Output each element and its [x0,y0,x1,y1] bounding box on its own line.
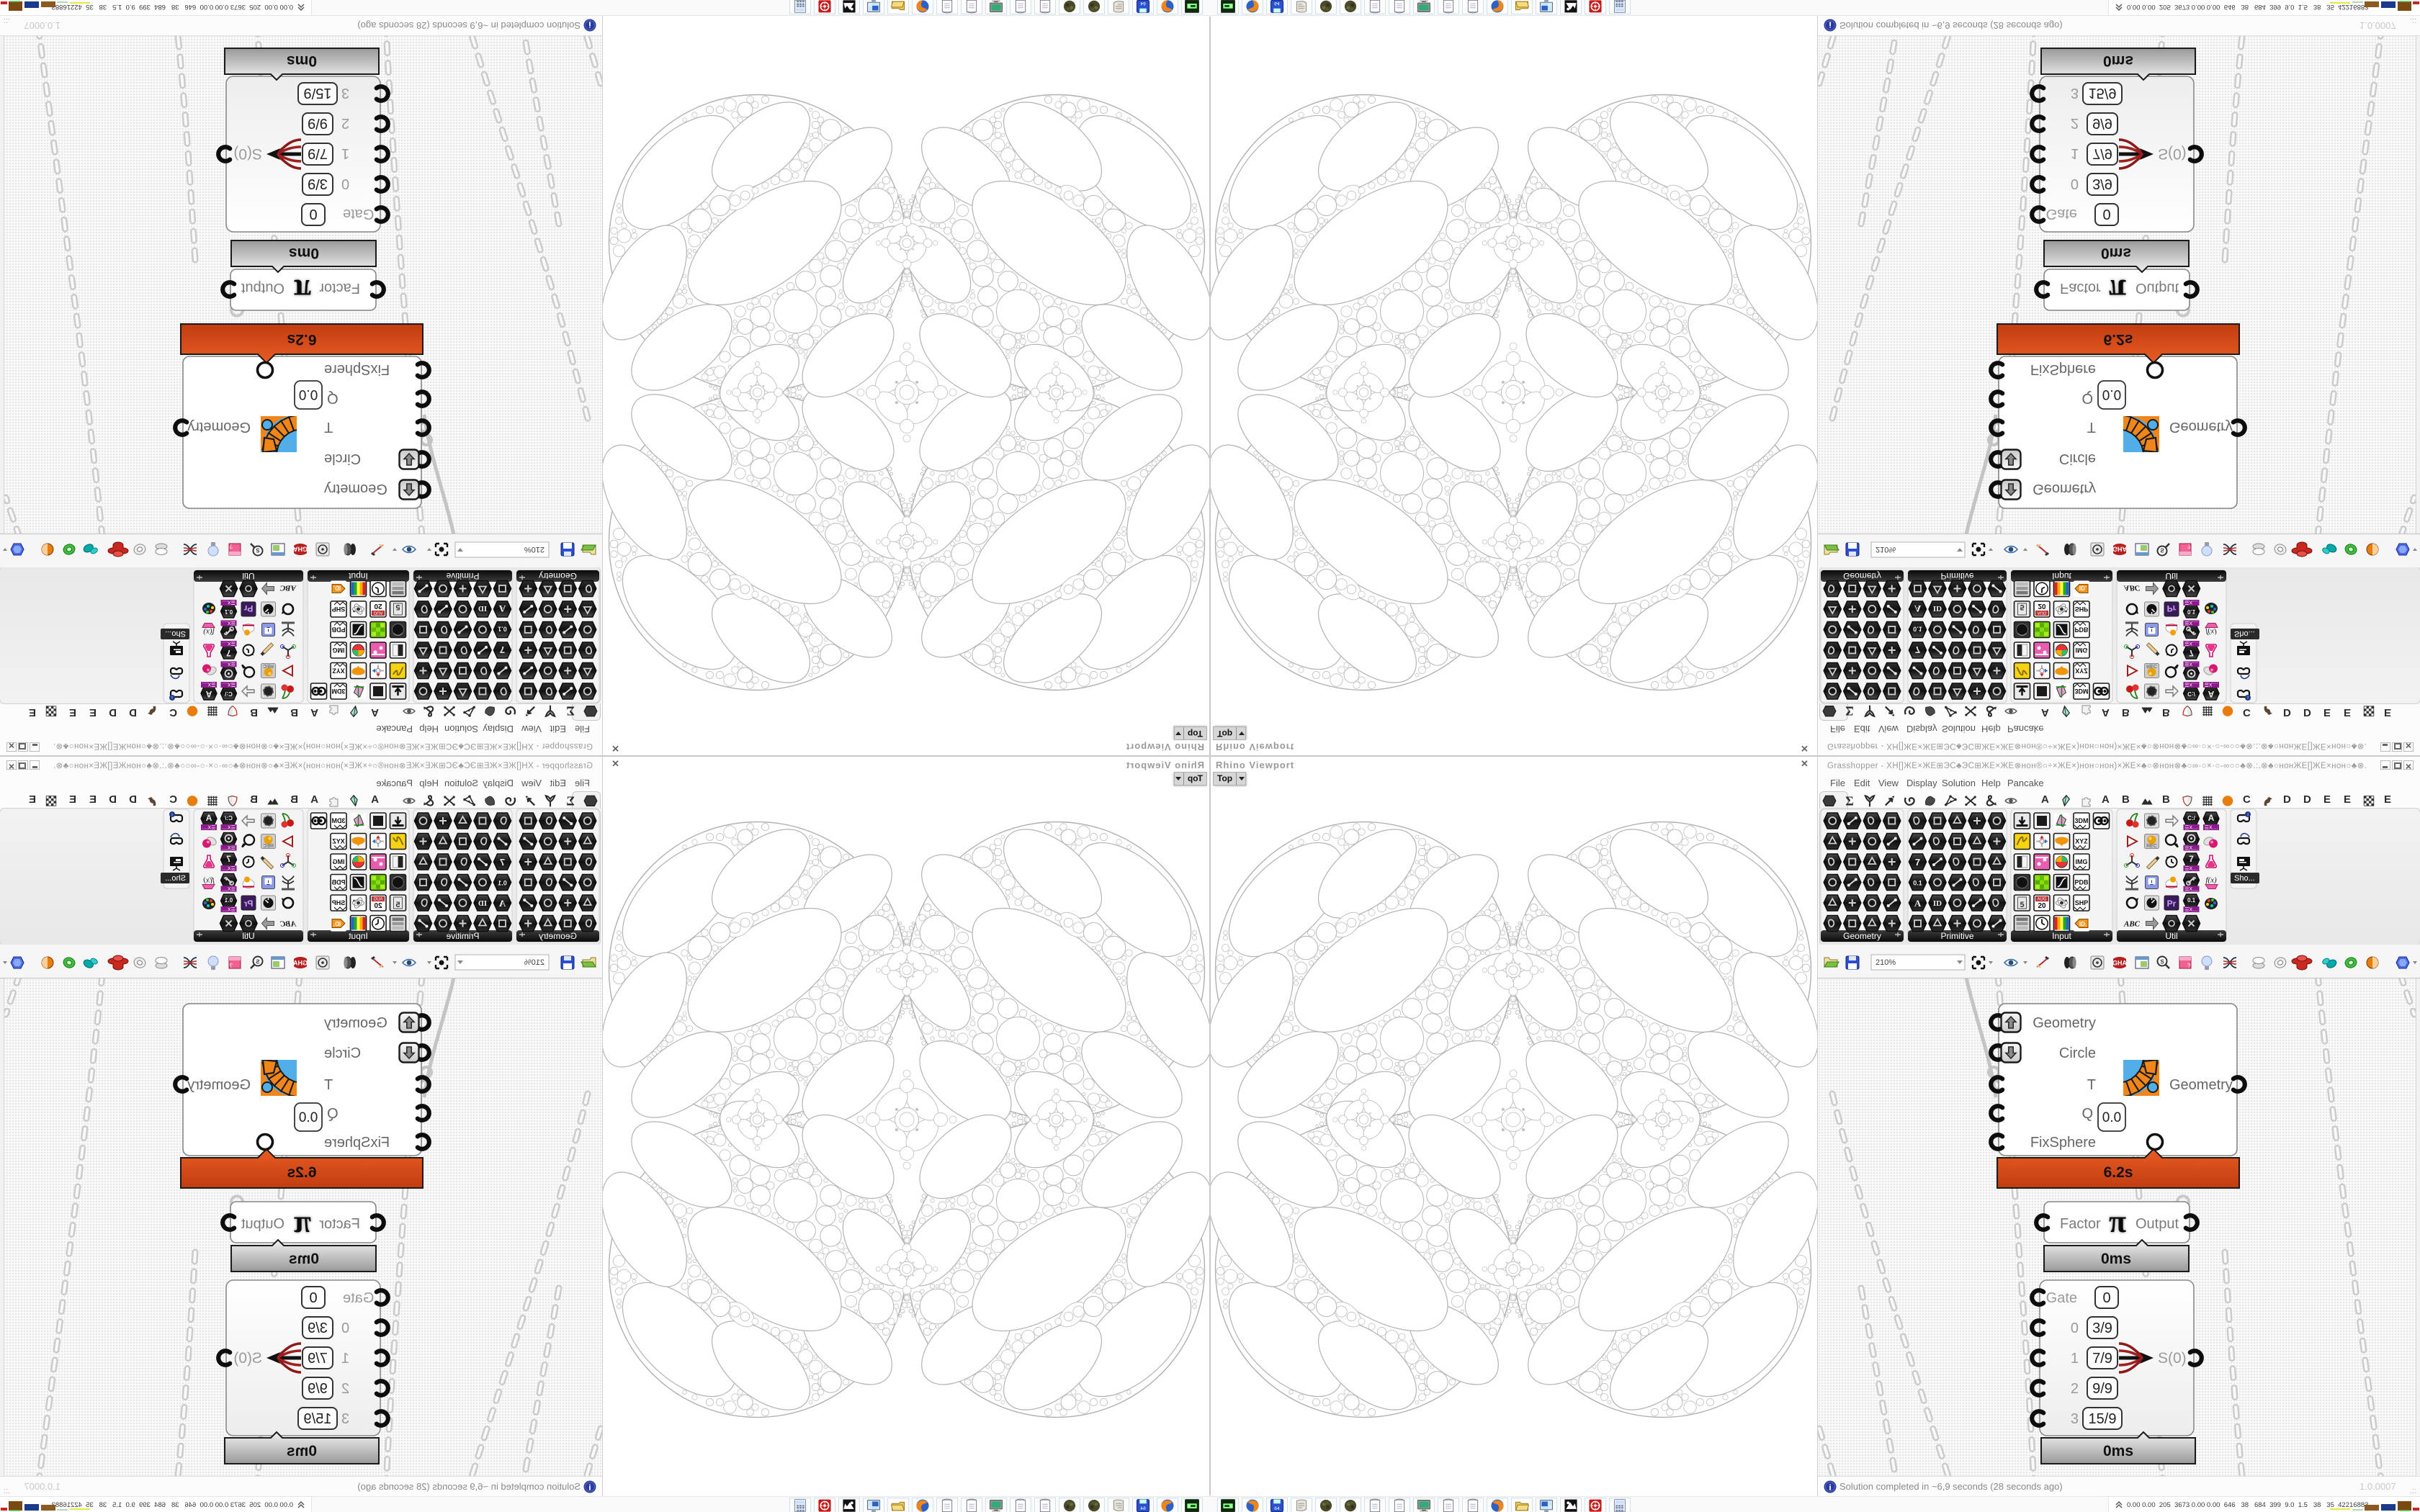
svg-text:A: A [205,813,212,823]
svg-text:C:/: C:/ [2187,815,2195,822]
svg-text:7: 7 [226,854,231,864]
svg-text:?: ? [2187,543,2191,549]
svg-text:AUG: AUG [373,611,382,615]
svg-text:Output: Output [2136,1216,2179,1232]
svg-text:Gate: Gate [343,1290,374,1306]
svg-text:☰X....: ☰X.... [222,620,236,625]
svg-text:FixSphere: FixSphere [324,1135,390,1151]
svg-text:7/9: 7/9 [2092,145,2112,161]
svg-text:π: π [294,273,311,308]
svg-text:Σ: Σ [566,704,575,718]
svg-text:0ms: 0ms [2101,245,2131,261]
svg-text:Q: Q [327,390,339,406]
svg-text:3DM: 3DM [331,688,345,695]
svg-text:Gate: Gate [2046,1290,2077,1306]
svg-text:Σ: Σ [1845,704,1854,718]
svg-text:Gate: Gate [2046,206,2077,222]
svg-text:Geometry: Geometry [539,931,577,941]
svg-text:Geometry: Geometry [324,1015,387,1031]
svg-text:S(0): S(0) [2158,1350,2187,1367]
svg-text:☰X....: ☰X.... [2205,826,2218,831]
svg-text:0.1: 0.1 [224,897,233,904]
svg-text:0.1: 0.1 [1913,626,1922,633]
svg-text:0.1: 0.1 [1913,880,1922,887]
svg-text:S(0): S(0) [233,145,262,162]
svg-text:☰X....: ☰X.... [222,826,236,831]
svg-text:Circle: Circle [324,451,361,467]
svg-text:Factor: Factor [319,280,360,296]
svg-text:A: A [498,603,506,614]
svg-text:XYZ: XYZ [332,838,345,845]
svg-text:Primitive: Primitive [446,931,479,941]
svg-text:S: S [256,959,260,966]
svg-text:SHP: SHP [2075,899,2089,906]
svg-text:T: T [324,1077,333,1093]
svg-text:C:/: C:/ [224,815,232,822]
svg-text:AUG: AUG [2037,898,2046,902]
svg-text:ID.: ID. [2079,921,2087,927]
svg-text:9/9: 9/9 [2092,115,2112,131]
svg-text:Pr: Pr [2167,899,2177,909]
svg-text:0.1: 0.1 [498,626,507,633]
svg-text:0ms: 0ms [2103,1443,2133,1459]
svg-text:3: 3 [2071,1411,2079,1427]
svg-text:7/9: 7/9 [308,1351,328,1367]
svg-text:REC: REC [2146,663,2157,668]
svg-text:0ms: 0ms [289,245,319,261]
svg-text:Input: Input [2052,571,2071,581]
svg-text:Pr: Pr [2167,603,2177,613]
svg-text:S(0): S(0) [2158,145,2187,162]
svg-text:Σ: Σ [566,794,575,808]
svg-text:0: 0 [2071,176,2079,192]
svg-text:IMG: IMG [333,647,345,654]
svg-text:7: 7 [1915,857,1920,868]
svg-text:☰X....: ☰X.... [2184,682,2198,687]
svg-text:Util: Util [2165,571,2177,581]
svg-text:T: T [2087,419,2096,435]
svg-text:20: 20 [2038,902,2046,910]
svg-text:20: 20 [374,902,382,910]
svg-text:5: 5 [2020,603,2024,611]
svg-text:π: π [2109,273,2126,308]
svg-text:PDB: PDB [2074,626,2089,634]
svg-text:ABC: ABC [2123,920,2141,929]
svg-text:Q: Q [327,1106,339,1122]
svg-text:0.1: 0.1 [498,880,507,887]
svg-text:Gate: Gate [343,206,374,222]
svg-text:S: S [2160,547,2164,554]
svg-text:ID: ID [478,604,487,613]
svg-text:A: A [205,689,212,699]
svg-text:FixSphere: FixSphere [2030,1135,2096,1151]
svg-text:6.2s: 6.2s [2104,1164,2133,1181]
svg-text:☰X....: ☰X.... [2184,846,2198,851]
svg-text:210%: 210% [524,545,544,554]
svg-text:0ms: 0ms [2103,53,2133,69]
svg-text:i: i [2247,814,2248,818]
svg-text:Geometry: Geometry [1843,571,1881,581]
svg-text:6.2s: 6.2s [2104,331,2133,348]
svg-text:3/9: 3/9 [2092,176,2112,192]
svg-text:☰X....: ☰X.... [2184,887,2198,892]
svg-text:☰X....: ☰X.... [222,908,236,913]
svg-text:Output: Output [2136,280,2179,296]
svg-text:PDB: PDB [331,879,346,886]
svg-text:3DM: 3DM [2074,688,2088,695]
svg-text:0: 0 [341,176,349,192]
svg-text:REC: REC [2146,844,2157,849]
svg-text:Geometry: Geometry [2033,1015,2096,1031]
svg-text:A: A [2208,689,2215,699]
svg-text:i: i [588,1482,591,1493]
svg-text:64: 64 [1140,1,1146,6]
svg-text:Factor: Factor [319,1216,360,1232]
svg-text:?: ? [229,963,233,969]
svg-text:f(x): f(x) [2205,876,2217,885]
svg-text:0.1: 0.1 [2187,897,2196,904]
svg-text:0.0: 0.0 [299,387,318,402]
svg-text:AUG: AUG [373,898,382,902]
svg-text:π: π [294,1204,311,1239]
svg-text:☰X....: ☰X.... [2184,661,2198,666]
svg-text:Pr: Pr [243,603,253,613]
svg-text:Circle: Circle [2059,451,2096,467]
svg-text:☰X....: ☰X.... [2184,620,2198,625]
svg-text:☰X....: ☰X.... [2184,908,2198,913]
svg-text:0ms: 0ms [2101,1251,2131,1267]
svg-text:☰X....: ☰X.... [2184,600,2198,605]
svg-text:1: 1 [341,1351,349,1367]
svg-text:☰X....: ☰X.... [222,887,236,892]
svg-text:Q: Q [2081,1106,2093,1122]
svg-text:Primitive: Primitive [1940,931,1973,941]
svg-text:Input: Input [348,931,367,941]
svg-text:0.0: 0.0 [2102,387,2121,402]
svg-text:15/9: 15/9 [2089,1411,2117,1427]
svg-text:0: 0 [309,1290,317,1306]
svg-text:☰X....: ☰X.... [2205,682,2218,687]
svg-text:Σ: Σ [1845,794,1854,808]
svg-text:f(x): f(x) [2205,628,2217,636]
svg-text:9/9: 9/9 [308,1381,328,1397]
svg-text:Sho...: Sho... [2234,629,2255,638]
svg-text:IMG: IMG [2076,647,2088,654]
svg-text:210%: 210% [524,958,544,967]
svg-text:Geometry: Geometry [2169,419,2233,435]
svg-text:15/9: 15/9 [2089,85,2117,101]
svg-text:i: i [588,20,591,30]
svg-text:A: A [498,898,506,909]
svg-text:7/9: 7/9 [2092,1351,2112,1367]
svg-text:Geometry: Geometry [324,481,387,497]
svg-text:FixSphere: FixSphere [324,361,390,377]
svg-text:5: 5 [395,901,400,909]
svg-text:Output: Output [241,1216,284,1232]
svg-text:Input: Input [2052,931,2071,941]
svg-text:ABC: ABC [2123,584,2141,593]
svg-text:XYZ: XYZ [2075,838,2088,845]
svg-text:GHA: GHA [2112,546,2128,553]
svg-text:☰X....: ☰X.... [202,682,216,687]
svg-text:0: 0 [341,1320,349,1336]
svg-text:☰X....: ☰X.... [222,867,236,872]
svg-text:Output: Output [241,280,284,296]
svg-text:☰X....: ☰X.... [222,682,236,687]
svg-text:9/9: 9/9 [2092,1381,2112,1397]
svg-text:f(x): f(x) [203,628,215,636]
svg-text:S: S [256,547,260,554]
svg-text:☰X....: ☰X.... [222,641,236,646]
svg-text:2: 2 [2071,1381,2079,1397]
svg-text:15/9: 15/9 [304,85,332,101]
svg-text:7: 7 [500,857,505,868]
svg-text:☰X....: ☰X.... [202,826,216,831]
svg-text:i: i [171,814,172,818]
svg-text:210%: 210% [1875,545,1896,554]
svg-text:Util: Util [242,571,254,581]
svg-text:3DM: 3DM [2074,817,2088,824]
svg-text:6.2s: 6.2s [287,1164,317,1181]
svg-text:Primitive: Primitive [446,571,479,581]
svg-text:5: 5 [395,603,400,611]
svg-text:☰X....: ☰X.... [2184,826,2198,831]
svg-text:Geometry: Geometry [2169,1077,2233,1093]
svg-text:210%: 210% [1875,958,1896,967]
svg-text:15/9: 15/9 [304,1411,332,1427]
svg-text:64: 64 [1274,1,1280,6]
svg-text:π: π [2109,1204,2126,1239]
svg-text:1: 1 [341,145,349,161]
svg-text:A: A [1914,603,1922,614]
svg-text:9/9: 9/9 [308,115,328,131]
svg-text:7: 7 [1915,644,1920,655]
svg-text:2: 2 [341,1381,349,1397]
svg-text:0: 0 [2102,206,2110,222]
svg-text:ID: ID [1933,899,1942,908]
svg-text:GHA: GHA [2112,960,2128,967]
svg-text:0.0: 0.0 [2102,1110,2121,1125]
svg-text:Sho...: Sho... [2234,874,2255,883]
svg-text:IMG: IMG [2076,858,2088,865]
svg-text:Sho...: Sho... [165,629,186,638]
svg-text:3DM: 3DM [331,817,345,824]
svg-text:☰X....: ☰X.... [2184,641,2198,646]
svg-text:?: ? [2187,963,2191,969]
svg-text:0.0: 0.0 [299,1110,318,1125]
svg-text:A: A [2208,813,2215,823]
svg-text:6.2s: 6.2s [287,331,317,348]
svg-text:Util: Util [2165,931,2177,941]
svg-text:3/9: 3/9 [308,1320,328,1336]
svg-text:i: i [2247,695,2248,699]
svg-text:Geometry: Geometry [187,419,251,435]
svg-text:ID: ID [1933,604,1942,613]
svg-text:1: 1 [2071,1351,2079,1367]
svg-text:3: 3 [341,85,349,101]
svg-text:7: 7 [2189,648,2194,658]
svg-text:0.1: 0.1 [224,608,233,615]
svg-text:Sho...: Sho... [165,874,186,883]
svg-text:REC: REC [263,844,274,849]
svg-text:Q: Q [2081,390,2093,406]
svg-text:SHP: SHP [332,606,346,613]
svg-text:3: 3 [2071,85,2079,101]
svg-text:☰X....: ☰X.... [222,661,236,666]
svg-text:Factor: Factor [2060,1216,2101,1232]
svg-text:ABC: ABC [279,584,297,593]
svg-text:AUG: AUG [2037,611,2046,615]
svg-text:XYZ: XYZ [332,667,345,675]
svg-text:PDB: PDB [331,626,346,634]
svg-text:C:/: C:/ [224,690,232,697]
svg-text:FixSphere: FixSphere [2030,361,2096,377]
svg-text:3: 3 [341,1411,349,1427]
svg-text:T: T [324,419,333,435]
svg-text:7: 7 [500,644,505,655]
svg-text:GHA: GHA [293,546,308,553]
svg-text:0ms: 0ms [287,1443,317,1459]
svg-text:0ms: 0ms [289,1251,319,1267]
svg-text:i: i [171,695,172,699]
svg-text:Geometry: Geometry [1843,931,1881,941]
svg-text:☰X....: ☰X.... [222,846,236,851]
svg-text:ID: ID [478,899,487,908]
svg-text:3/9: 3/9 [308,176,328,192]
svg-text:7/9: 7/9 [308,145,328,161]
svg-text:ABC: ABC [279,920,297,929]
svg-text:?: ? [229,543,233,549]
svg-text:GHA: GHA [293,960,308,967]
svg-text:7: 7 [226,648,231,658]
svg-text:PDB: PDB [2074,879,2089,886]
svg-text:Util: Util [242,931,254,941]
svg-text:0: 0 [2071,1320,2079,1336]
svg-text:S: S [2160,959,2164,966]
svg-text:Pr: Pr [243,899,253,909]
svg-text:S(0): S(0) [233,1350,262,1367]
svg-text:☰X....: ☰X.... [2184,867,2198,872]
svg-text:Geometry: Geometry [187,1077,251,1093]
svg-text:Circle: Circle [2059,1045,2096,1061]
svg-text:SHP: SHP [332,899,346,906]
svg-text:3/9: 3/9 [2092,1320,2112,1336]
svg-text:REC: REC [263,663,274,668]
svg-text:20: 20 [374,602,382,610]
svg-text:2: 2 [2071,115,2079,131]
svg-text:Factor: Factor [2060,280,2101,296]
svg-text:ID.: ID. [333,585,341,591]
svg-text:64: 64 [1140,1506,1146,1511]
svg-text:IMG: IMG [333,858,345,865]
svg-text:A: A [1914,898,1922,909]
svg-text:XYZ: XYZ [2075,667,2088,675]
svg-text:ID.: ID. [333,921,341,927]
svg-text:T: T [2087,1077,2096,1093]
svg-text:0ms: 0ms [287,53,317,69]
svg-text:Geometry: Geometry [2033,481,2096,497]
svg-text:5: 5 [2020,901,2024,909]
svg-text:f(x): f(x) [203,876,215,885]
svg-text:0.1: 0.1 [2187,608,2196,615]
svg-text:2: 2 [341,115,349,131]
svg-text:SHP: SHP [2075,606,2089,613]
svg-text:0: 0 [2102,1290,2110,1306]
svg-text:20: 20 [2038,602,2046,610]
svg-text:ID.: ID. [2079,585,2087,591]
svg-text:7: 7 [2189,854,2194,864]
svg-text:Circle: Circle [324,1045,361,1061]
svg-text:0: 0 [309,206,317,222]
svg-text:C:/: C:/ [2187,690,2195,697]
svg-text:Primitive: Primitive [1940,571,1973,581]
svg-text:Geometry: Geometry [539,571,577,581]
svg-text:Input: Input [348,571,367,581]
svg-text:☰X....: ☰X.... [222,600,236,605]
svg-text:64: 64 [1274,1506,1280,1511]
svg-text:1: 1 [2071,145,2079,161]
